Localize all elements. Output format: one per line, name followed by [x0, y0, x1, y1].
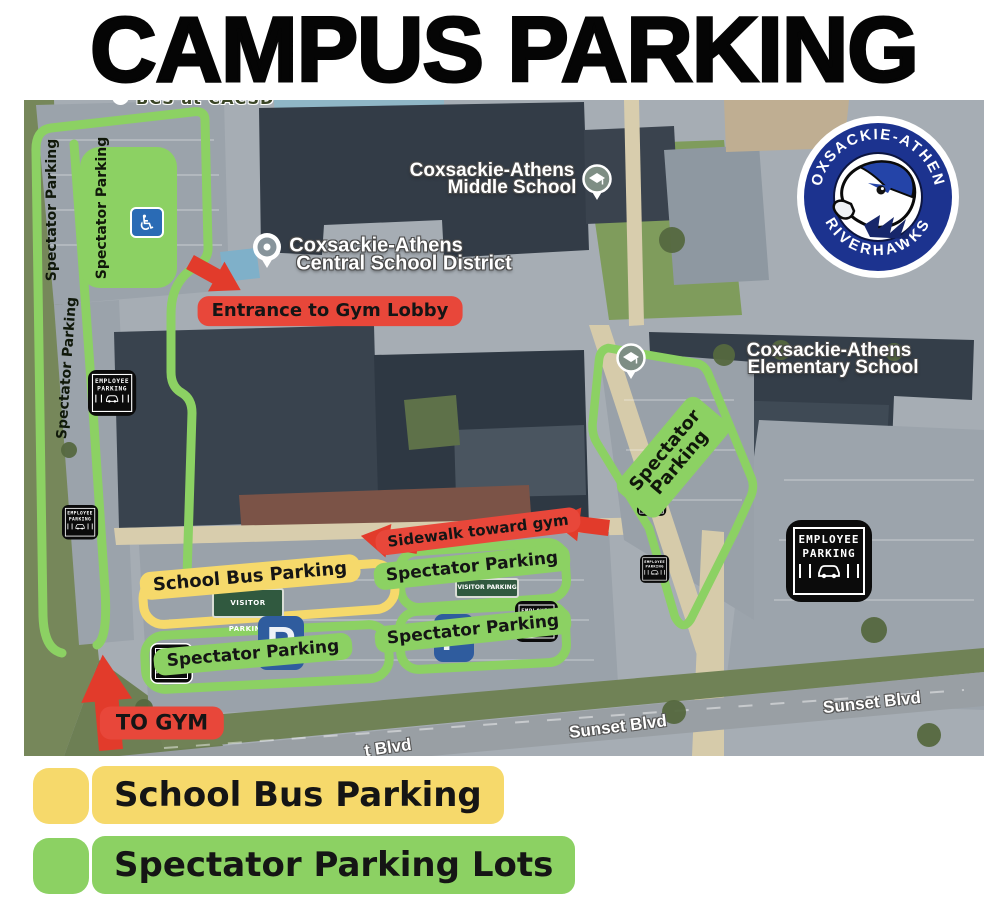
sign-bars	[67, 523, 72, 529]
car-icon	[816, 564, 842, 579]
sign-bars	[95, 395, 102, 403]
middle-school-label-line2: Middle School	[448, 177, 577, 199]
employee-sign-line2: PARKING	[646, 564, 664, 568]
riverhawks-logo: COXSACKIE-ATHENS RIVERHAWKS	[797, 116, 959, 278]
entrance-to-gym-label: Entrance to Gym Lobby	[198, 296, 463, 326]
sign-bars	[661, 570, 665, 575]
map-pin-district	[253, 233, 281, 268]
car-icon	[75, 523, 86, 529]
handicap-parking-icon: ♿	[130, 207, 164, 238]
legend-swatch-bus	[33, 768, 89, 824]
legend-label-bus: School Bus Parking	[92, 766, 504, 824]
employee-sign-line2: PARKING	[97, 385, 127, 392]
employee-parking-sign-large: EMPLOYEE PARKING	[786, 520, 872, 602]
campus-parking-poster: CAMPUS PARKING	[0, 0, 1008, 912]
legend-label-spectator: Spectator Parking Lots	[92, 836, 575, 894]
employee-parking-sign: EMPLOYEE PARKING	[62, 505, 98, 539]
car-icon	[650, 570, 659, 575]
district-label-line2: Central School District	[296, 253, 512, 276]
spectator-vertical-label-2: Spectator Parking	[94, 137, 110, 279]
employee-sign-line2: PARKING	[69, 516, 91, 521]
clipped-map-label: BCS at CACSD	[136, 100, 274, 108]
sign-bars	[122, 395, 129, 403]
sign-bars	[847, 564, 859, 578]
employee-sign-line1: EMPLOYEE	[67, 510, 93, 515]
employee-parking-sign: EMPLOYEE PARKING	[88, 370, 136, 416]
sign-bars	[644, 570, 648, 575]
page-title: CAMPUS PARKING	[0, 0, 1008, 100]
sign-bars	[799, 564, 811, 578]
sign-bars	[88, 523, 93, 529]
car-icon	[105, 394, 120, 402]
campus-map: COXSACKIE-ATHENS RIVERHAWKS BCS at CACSD	[24, 100, 984, 756]
to-gym-label: TO GYM	[100, 706, 224, 739]
map-pin-middle-school	[584, 166, 611, 201]
spectator-vertical-label-1: Spectator Parking	[44, 139, 60, 281]
map-pin-elementary	[618, 345, 645, 380]
employee-sign-line1: EMPLOYEE	[95, 377, 129, 384]
legend-swatch-spectator	[33, 838, 89, 894]
employee-sign-line2: PARKING	[802, 547, 855, 560]
elementary-label-line2: Elementary School	[747, 357, 918, 379]
employee-sign-line1: EMPLOYEE	[799, 533, 860, 546]
location-dot-icon	[264, 244, 271, 251]
employee-parking-sign: EMPLOYEE PARKING	[640, 555, 669, 583]
